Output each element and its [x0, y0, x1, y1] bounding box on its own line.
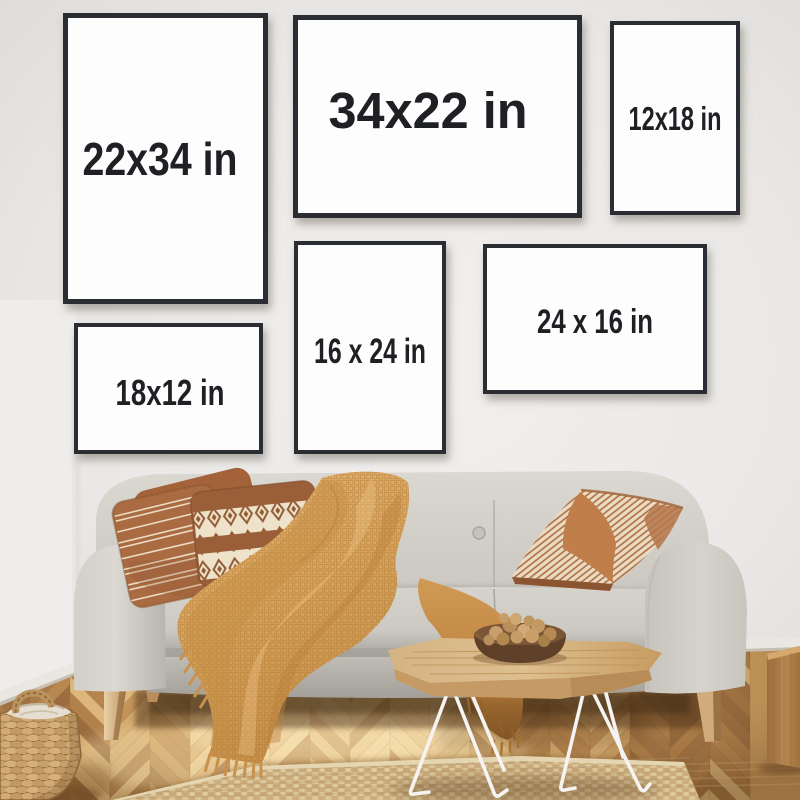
svg-text:18x12 in: 18x12 in	[116, 372, 225, 413]
svg-text:16 x 24 in: 16 x 24 in	[314, 332, 426, 371]
svg-text:22x34 in: 22x34 in	[83, 133, 238, 185]
svg-text:34x22 in: 34x22 in	[329, 82, 528, 139]
svg-text:24 x 16 in: 24 x 16 in	[537, 303, 653, 341]
svg-text:12x18 in: 12x18 in	[629, 100, 722, 137]
